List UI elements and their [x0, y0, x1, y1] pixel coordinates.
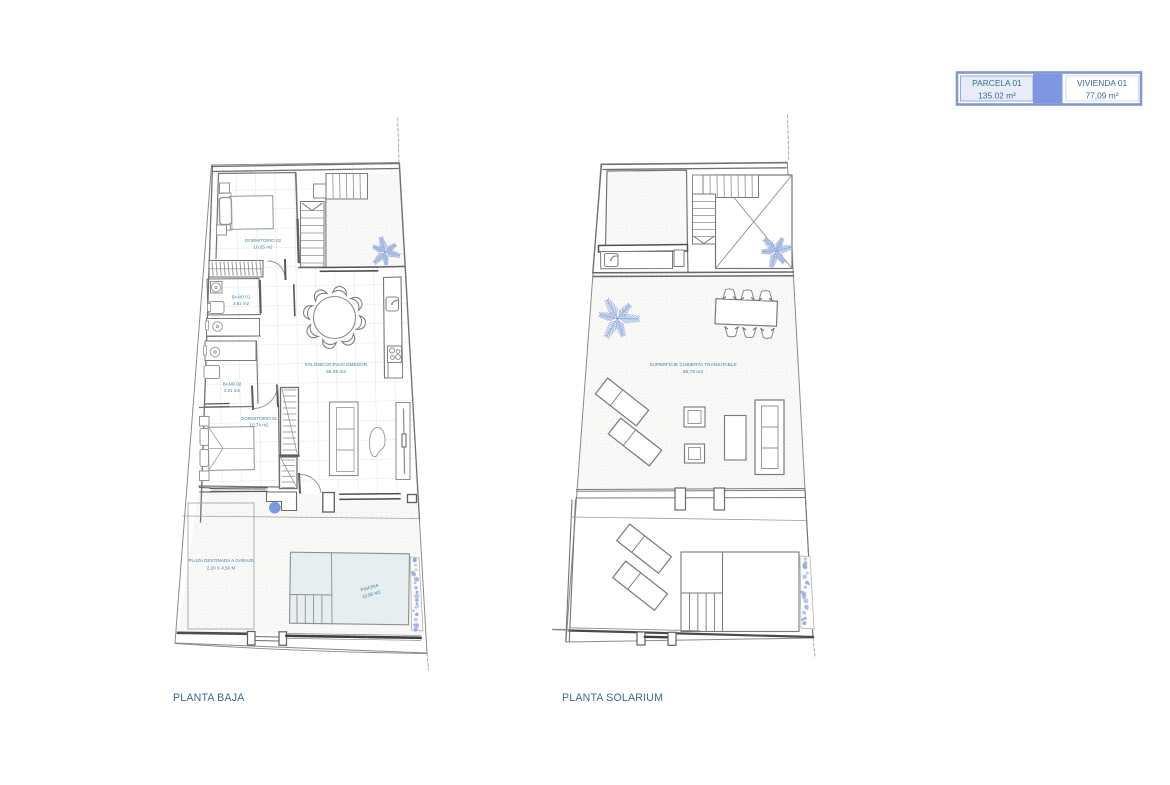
svg-text:DORMITORIO 02: DORMITORIO 02: [245, 238, 282, 243]
svg-text:3.61 m2: 3.61 m2: [233, 301, 249, 306]
svg-text:36.29 m2: 36.29 m2: [326, 369, 346, 375]
svg-text:PLANTA BAJA: PLANTA BAJA: [173, 692, 245, 704]
svg-text:60,76 m2: 60,76 m2: [683, 369, 703, 375]
svg-text:PARCELA 01: PARCELA 01: [972, 78, 1022, 88]
svg-text:2,20 X 4,50 M: 2,20 X 4,50 M: [207, 566, 236, 571]
svg-text:BAÑO 02: BAÑO 02: [223, 382, 242, 387]
svg-text:DORMITORIO 01: DORMITORIO 01: [241, 416, 278, 421]
svg-text:SALÓN/COCINA/COMEDOR: SALÓN/COCINA/COMEDOR: [305, 361, 368, 368]
svg-text:77,09 m²: 77,09 m²: [1085, 90, 1118, 100]
svg-text:10,74 m2: 10,74 m2: [249, 423, 269, 428]
svg-text:135.02 m²: 135.02 m²: [978, 90, 1016, 100]
svg-text:BAÑO 01: BAÑO 01: [232, 295, 251, 300]
svg-text:VIVIENDA 01: VIVIENDA 01: [1077, 78, 1128, 88]
svg-text:PLAZA DESTINADA A GARAJE: PLAZA DESTINADA A GARAJE: [188, 558, 253, 563]
svg-text:SUPERFICIE CUBIERTA TRANSITABL: SUPERFICIE CUBIERTA TRANSITABLE: [649, 362, 736, 368]
svg-text:4,01 m2: 4,01 m2: [224, 388, 240, 393]
svg-text:10.25 m2: 10.25 m2: [253, 245, 273, 250]
svg-text:PLANTA SOLARIUM: PLANTA SOLARIUM: [562, 692, 663, 704]
